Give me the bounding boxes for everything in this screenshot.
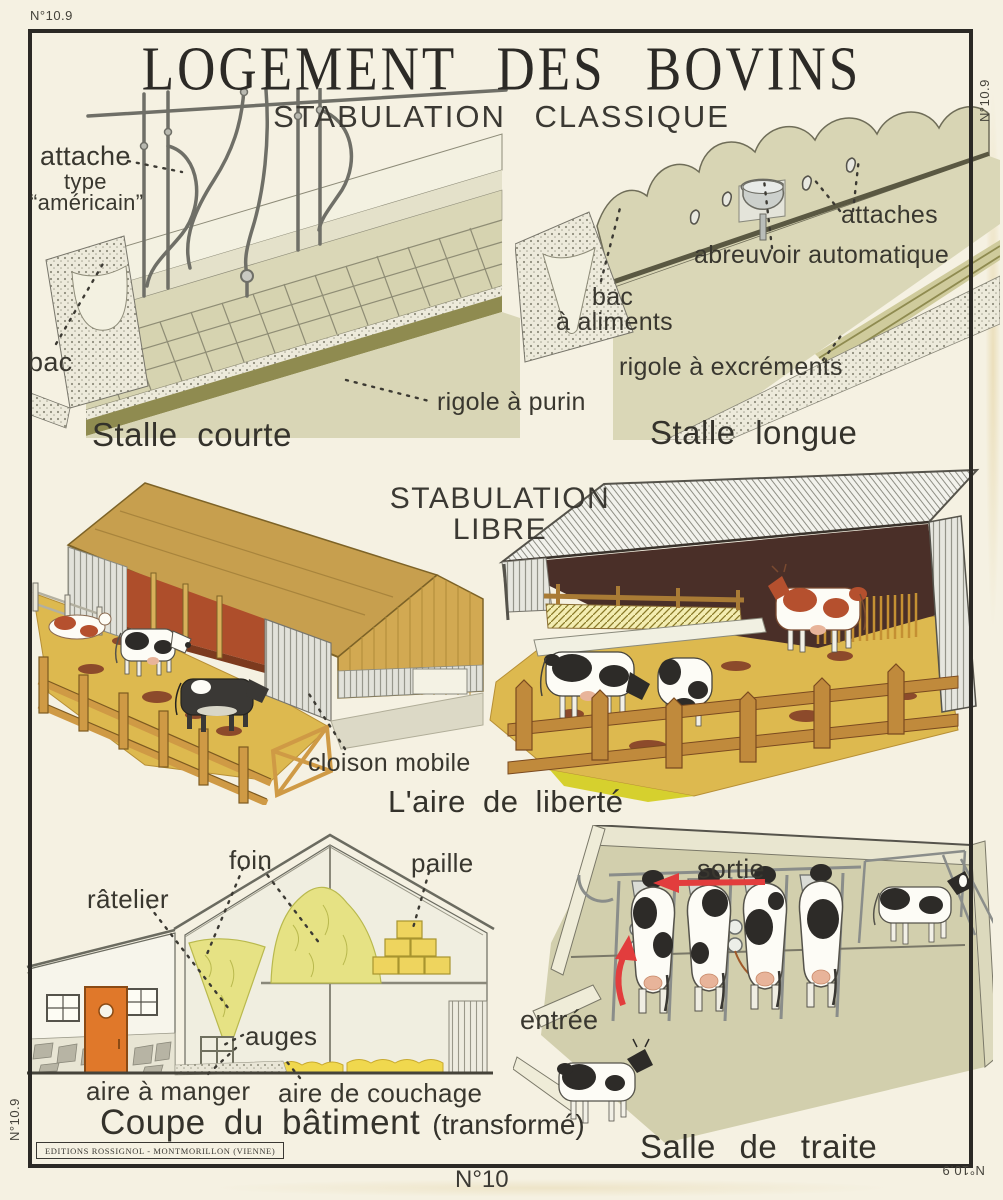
- orange-door: [85, 987, 127, 1073]
- label-paille: paille: [411, 848, 474, 879]
- label-abreuvoir-automatique: abreuvoir automatique: [694, 241, 949, 270]
- caption-stalle-courte: Stalle courte: [92, 416, 292, 454]
- auges-feed-grid: [201, 1037, 233, 1065]
- plate-mark-bottom-right: N°10.9: [942, 1163, 985, 1178]
- window: [47, 995, 79, 1021]
- label-rigole-a-purin: rigole à purin: [437, 388, 586, 417]
- label-ratelier: râtelier: [87, 884, 169, 915]
- label-attache: attache: [40, 141, 131, 172]
- label-bac-a-aliments-line2: à aliments: [556, 308, 673, 337]
- window: [125, 989, 157, 1015]
- label-rigole-a-excrements: rigole à excréments: [619, 353, 843, 382]
- label-foin: foin: [229, 845, 272, 876]
- label-auges: auges: [245, 1021, 317, 1052]
- heading-stabulation-libre-line1: STABULATION: [380, 482, 620, 516]
- bedding-straw: [281, 1062, 343, 1074]
- poster-logement-des-bovins: N°10.9 N°10.9 N°10.9 N°10.9 LOGEMENT DES…: [0, 0, 1003, 1200]
- label-cloison-mobile: cloison mobile: [308, 749, 471, 778]
- caption-stalle-longue: Stalle longue: [650, 414, 857, 452]
- section-heading-stabulation-classique: STABULATION CLASSIQUE: [0, 99, 1003, 135]
- caption-coupe-main: Coupe du bâtiment: [100, 1103, 420, 1142]
- plate-mark-bottom-left: N°10.9: [7, 1098, 22, 1141]
- sheet-number: N°10: [455, 1166, 509, 1194]
- label-sortie: sortie: [697, 854, 765, 885]
- caption-salle-de-traite: Salle de traite: [640, 1128, 877, 1166]
- label-bac: bac: [28, 347, 72, 378]
- caption-aire-de-liberte: L'aire de liberté: [388, 784, 624, 820]
- plate-mark-top-left: N°10.9: [30, 8, 73, 23]
- heading-stabulation-libre-line2: LIBRE: [380, 513, 620, 547]
- label-attache-americain: “américain”: [30, 190, 143, 216]
- poster-title: LOGEMENT DES BOVINS: [0, 34, 1003, 105]
- label-attaches: attaches: [841, 201, 938, 230]
- label-entree: entrée: [520, 1005, 598, 1036]
- publisher-credit: EDITIONS ROSSIGNOL - MONTMORILLON (VIENN…: [36, 1142, 284, 1159]
- caption-coupe-du-batiment: Coupe du bâtiment(transformé): [100, 1103, 585, 1143]
- caption-coupe-note: (transformé): [432, 1109, 584, 1140]
